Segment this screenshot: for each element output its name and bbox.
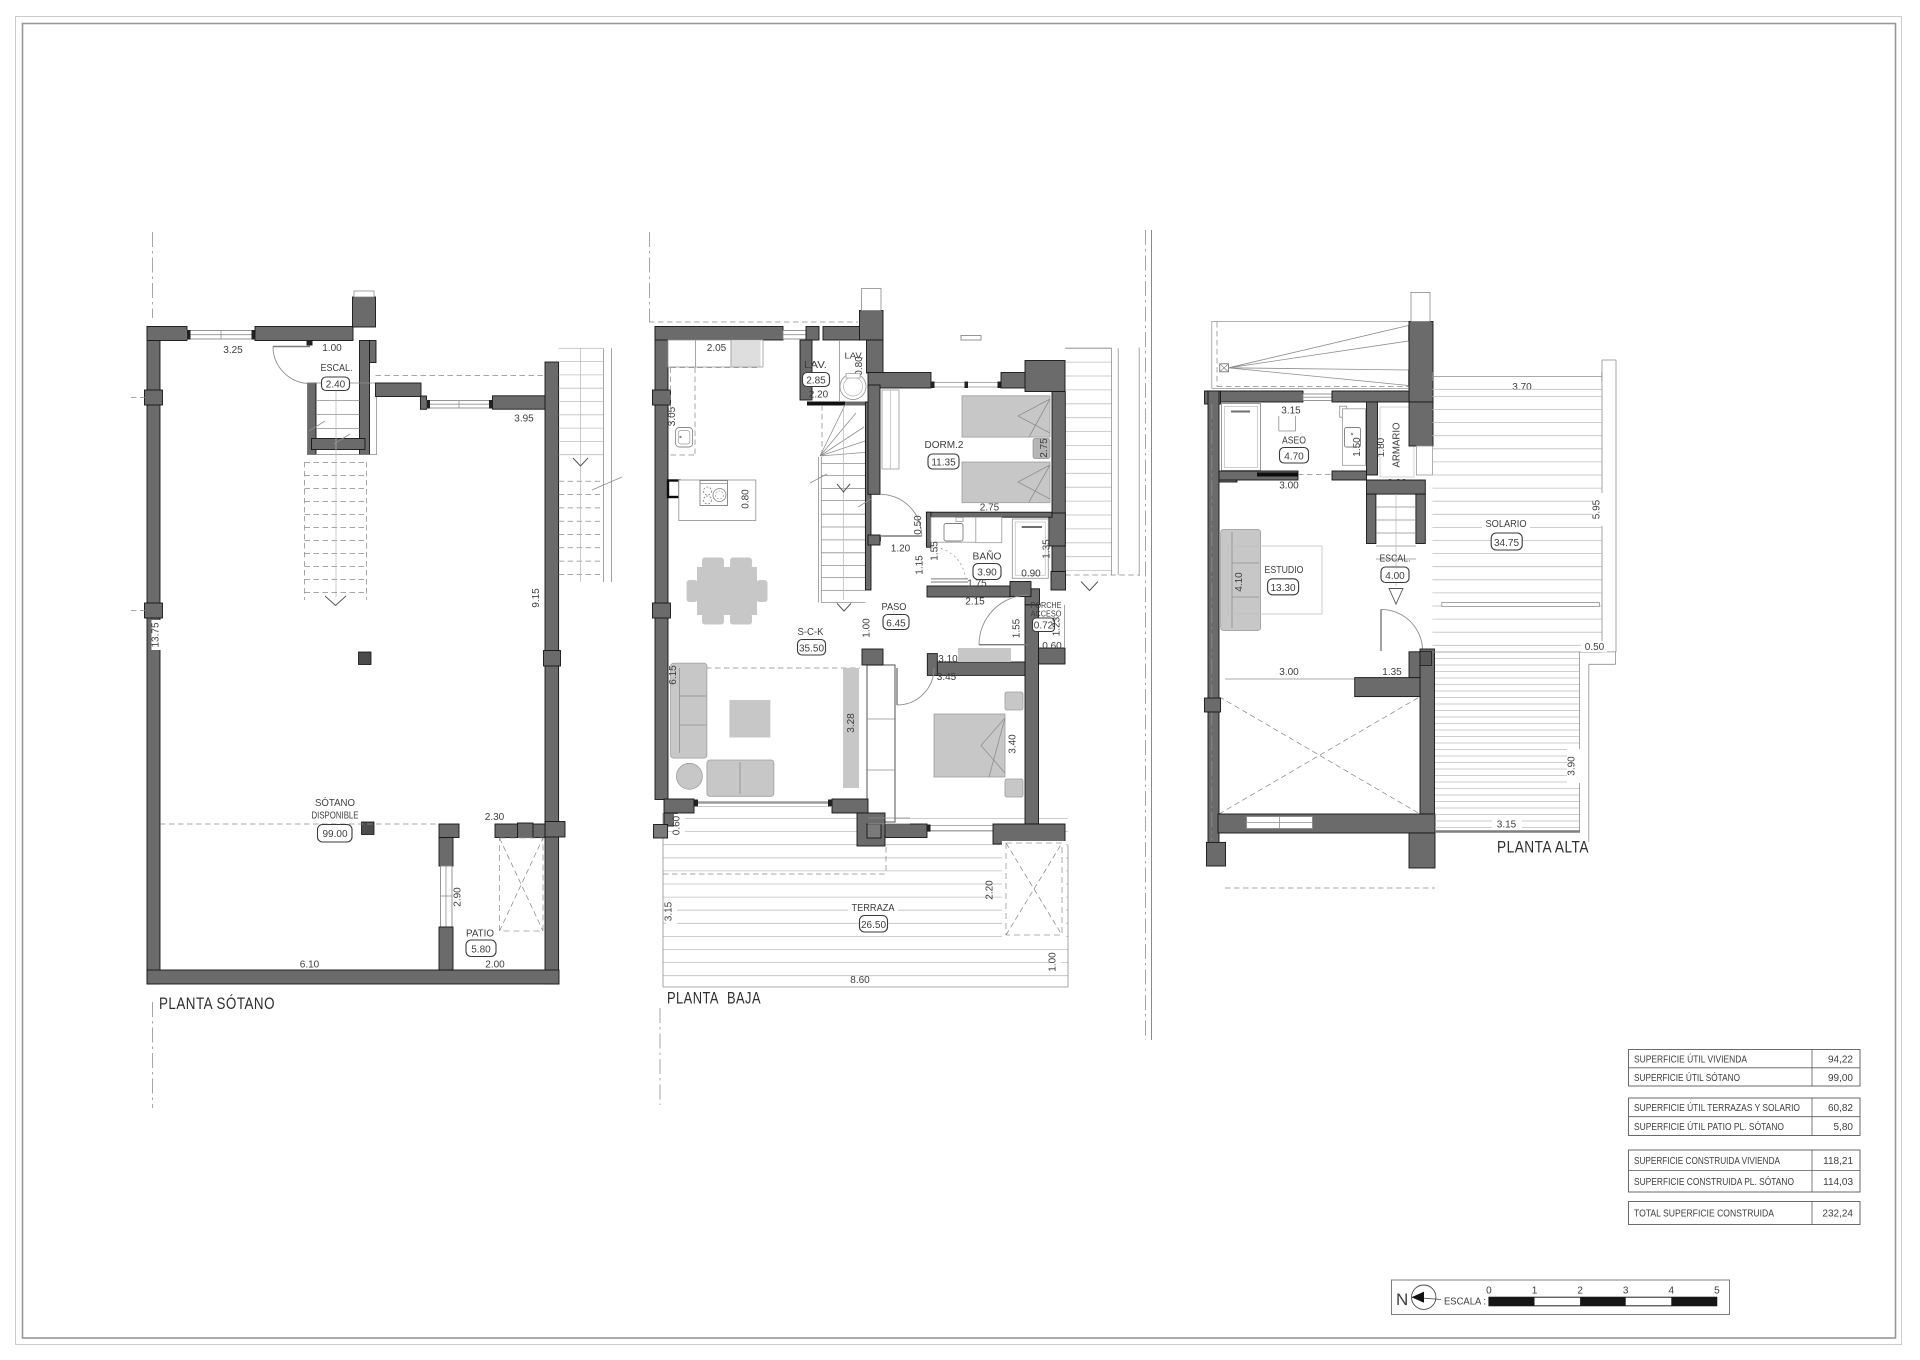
svg-text:ESCAL.: ESCAL. [1380,553,1411,565]
svg-text:2.85: 2.85 [806,376,826,387]
svg-text:1.55: 1.55 [930,541,941,561]
svg-text:3.90: 3.90 [977,568,997,579]
svg-text:6.15: 6.15 [668,665,679,685]
svg-text:0.50: 0.50 [1585,642,1605,653]
svg-text:4.70: 4.70 [1284,452,1304,463]
svg-text:3: 3 [1623,1286,1629,1297]
svg-text:1.00: 1.00 [322,343,342,354]
svg-text:6.45: 6.45 [886,619,906,630]
svg-text:ASEO: ASEO [1282,435,1306,447]
svg-text:13.30: 13.30 [1270,583,1295,594]
svg-text:26.50: 26.50 [861,920,886,931]
svg-text:5,80: 5,80 [1834,1122,1854,1133]
svg-text:ESCALA :: ESCALA : [1444,1296,1486,1308]
svg-text:9.15: 9.15 [531,588,542,608]
svg-text:3.25: 3.25 [223,345,243,356]
svg-text:1.23: 1.23 [1052,616,1063,636]
svg-text:PASO: PASO [882,601,907,613]
svg-text:0.60: 0.60 [672,815,683,835]
svg-text:2.75: 2.75 [1039,438,1050,458]
svg-text:DISPONIBLE: DISPONIBLE [312,810,359,822]
svg-text:PLANTA BAJA: PLANTA BAJA [667,990,761,1008]
svg-text:SUPERFICIE CONSTRUIDA VIVIENDA: SUPERFICIE CONSTRUIDA VIVIENDA [1634,1156,1780,1167]
svg-text:BAÑO: BAÑO [973,550,1002,563]
svg-text:3.15: 3.15 [1497,820,1517,831]
svg-text:1: 1 [1532,1286,1538,1297]
svg-text:5.80: 5.80 [471,945,491,956]
svg-text:3.05: 3.05 [667,406,678,426]
svg-text:232,24: 232,24 [1822,1209,1853,1220]
svg-text:N: N [1396,1290,1408,1309]
svg-text:2.40: 2.40 [326,380,346,391]
svg-text:4: 4 [1669,1286,1675,1297]
svg-text:ESCAL.: ESCAL. [321,362,353,374]
svg-text:DORM.2: DORM.2 [925,439,964,451]
svg-text:35.50: 35.50 [799,644,824,655]
svg-text:1.35: 1.35 [1382,667,1402,678]
svg-text:2.00: 2.00 [485,960,505,971]
svg-text:1.00: 1.00 [862,618,873,638]
svg-text:3.90: 3.90 [1567,756,1578,776]
svg-text:1.80: 1.80 [1376,437,1387,457]
svg-text:LAV.: LAV. [804,359,827,371]
svg-text:2.05: 2.05 [707,343,727,354]
svg-text:8.60: 8.60 [850,975,870,986]
svg-text:S-C-K: S-C-K [798,626,824,638]
svg-text:0.80: 0.80 [741,489,752,509]
svg-text:2.30: 2.30 [485,812,505,823]
svg-text:2.20: 2.20 [985,880,996,900]
svg-text:13.75: 13.75 [151,622,162,647]
svg-text:99,00: 99,00 [1828,1073,1853,1084]
svg-text:3.45: 3.45 [937,672,957,683]
svg-text:1.75: 1.75 [967,579,987,590]
svg-text:ESTUDIO: ESTUDIO [1265,564,1304,576]
svg-text:1.20: 1.20 [891,544,911,555]
svg-text:0.80: 0.80 [854,356,865,376]
svg-text:PLANTA SÓTANO: PLANTA SÓTANO [159,994,275,1013]
svg-text:0: 0 [1486,1286,1492,1297]
svg-text:TOTAL SUPERFICIE CONSTRUIDA: TOTAL SUPERFICIE CONSTRUIDA [1634,1209,1774,1220]
svg-text:1.55: 1.55 [1012,618,1023,638]
svg-text:4.00: 4.00 [1385,571,1405,582]
svg-text:5.95: 5.95 [1592,499,1603,519]
svg-text:2: 2 [1577,1286,1583,1297]
svg-text:2.15: 2.15 [965,597,985,608]
svg-text:3.15: 3.15 [1281,406,1301,417]
svg-text:11.35: 11.35 [931,458,956,469]
svg-text:5: 5 [1714,1286,1720,1297]
svg-text:3.15: 3.15 [664,901,675,921]
svg-text:6.10: 6.10 [300,960,320,971]
svg-text:0.50: 0.50 [913,515,924,535]
svg-text:PATIO: PATIO [466,928,494,940]
svg-text:SUPERFICIE ÚTIL TERRAZAS Y SOL: SUPERFICIE ÚTIL TERRAZAS Y SOLARIO [1634,1101,1800,1114]
svg-text:2.20: 2.20 [809,390,829,401]
svg-text:34.75: 34.75 [1494,538,1519,549]
svg-text:SUPERFICIE ÚTIL SÓTANO: SUPERFICIE ÚTIL SÓTANO [1634,1071,1740,1084]
svg-text:SOLARIO: SOLARIO [1486,518,1527,530]
svg-text:1.50: 1.50 [1352,437,1363,457]
svg-text:1.15: 1.15 [915,555,926,575]
svg-text:118,21: 118,21 [1823,1156,1853,1167]
svg-text:ARMARIO: ARMARIO [1392,422,1403,467]
svg-text:114,03: 114,03 [1823,1177,1853,1188]
svg-text:3.00: 3.00 [1279,667,1299,678]
svg-text:3.00: 3.00 [1279,481,1299,492]
svg-text:PLANTA ALTA: PLANTA ALTA [1497,839,1589,857]
svg-text:60,82: 60,82 [1828,1103,1853,1114]
svg-text:0.90: 0.90 [1021,569,1041,580]
svg-text:2.90: 2.90 [453,887,464,907]
svg-text:3.40: 3.40 [1008,734,1019,754]
svg-text:1.00: 1.00 [1048,952,1059,972]
svg-text:3.70: 3.70 [1512,382,1532,393]
svg-text:4.10: 4.10 [1234,572,1245,592]
svg-text:TERRAZA: TERRAZA [852,902,895,914]
svg-text:3.28: 3.28 [846,713,857,733]
svg-text:SUPERFICIE ÚTIL VIVIENDA: SUPERFICIE ÚTIL VIVIENDA [1634,1053,1747,1066]
svg-text:1.35: 1.35 [1042,539,1053,559]
svg-text:0.60: 0.60 [1042,641,1062,652]
svg-text:99.00: 99.00 [322,829,347,840]
svg-text:3.10: 3.10 [938,654,958,665]
svg-text:3.95: 3.95 [514,414,534,425]
svg-text:94,22: 94,22 [1828,1055,1853,1066]
svg-text:SÓTANO: SÓTANO [315,796,355,809]
svg-text:SUPERFICIE CONSTRUIDA PL. SÓTA: SUPERFICIE CONSTRUIDA PL. SÓTANO [1634,1175,1794,1188]
svg-text:SUPERFICIE ÚTIL PATIO PL. SÓTA: SUPERFICIE ÚTIL PATIO PL. SÓTANO [1634,1120,1784,1133]
